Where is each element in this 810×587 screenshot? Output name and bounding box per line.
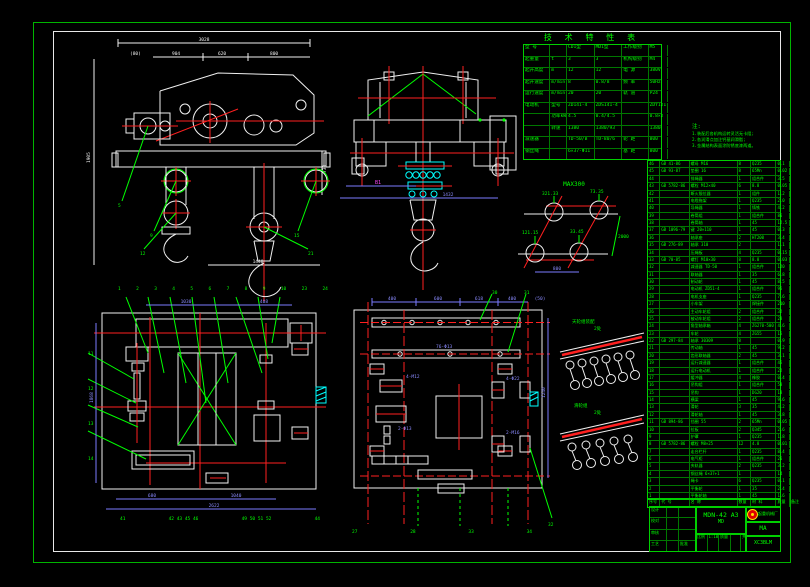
table-row: 33GB 70-85螺钉 M10×3088.80.03	[648, 257, 780, 264]
table-cell: 45	[751, 279, 776, 285]
table-cell	[790, 183, 800, 189]
table-row: 37GB 1096-79键 20×1101450.3	[648, 227, 780, 234]
table-cell: 1	[738, 286, 752, 292]
leader-label: 28	[410, 530, 415, 535]
dimension-lines: 400 600 618 400 (50) 1240 4-M12 4-Φ22 2-…	[372, 296, 548, 478]
table-cell: 1	[738, 486, 752, 492]
leader-label: 7	[227, 287, 230, 292]
leader-label: 4	[172, 287, 175, 292]
table-cell: 9.2	[776, 345, 790, 351]
table-cell: 电动机	[524, 103, 550, 114]
table-cell: 挡圈 55	[690, 419, 738, 425]
table-cell: 12	[595, 68, 623, 79]
table-cell: 37	[648, 227, 660, 233]
table-cell	[790, 478, 800, 484]
table-cell	[790, 463, 800, 469]
company-stamp-icon	[747, 509, 758, 520]
table-cell	[790, 198, 800, 204]
leader-label: 10	[281, 287, 286, 292]
table-cell: 1	[738, 279, 752, 285]
table-row: 10拉板2Q3452.6	[648, 427, 780, 434]
table-row: 41电缆拖架1Q2352.0	[648, 198, 780, 205]
table-cell	[660, 294, 689, 300]
table-row: 18运行电动机1组合件22	[648, 368, 780, 375]
table-cell: 4.2	[776, 404, 790, 410]
table-cell	[790, 264, 800, 270]
table-row: 42断火限位器1组件1.2	[648, 191, 780, 198]
table-row: 审核	[650, 530, 696, 541]
table-cell: 组合件	[751, 176, 776, 182]
table-cell: 电 源	[622, 68, 648, 79]
table-cell: 9.6	[776, 397, 790, 403]
leader-label: 49 50 51 52	[242, 517, 272, 522]
table-cell: 22	[648, 338, 660, 344]
table-cell	[790, 434, 800, 440]
table-row: 25被动车轮组2组合件28	[648, 316, 780, 323]
table-cell: 8	[648, 441, 660, 447]
table-cell: 0.15	[776, 250, 790, 256]
table-cell	[668, 126, 681, 137]
leader-label: 3	[154, 287, 157, 292]
table-cell: 轴承 30309	[690, 338, 738, 344]
table-cell	[668, 103, 681, 114]
table-cell	[668, 45, 681, 56]
table-cell: Q235	[751, 434, 776, 440]
table-row: 27小车架1焊接件210	[648, 301, 780, 308]
table-cell: 6×37-Φ11	[567, 149, 595, 160]
table-cell: 螺母 M16	[690, 161, 738, 167]
table-cell: 组合件	[751, 316, 776, 322]
drive-shaft	[254, 343, 308, 441]
hole-callout: 2-Φ13	[398, 426, 412, 432]
table-cell: 功率kW	[550, 114, 567, 125]
travel-gearbox	[132, 451, 228, 483]
table-cell: 4	[738, 250, 752, 256]
table-cell: 15	[648, 390, 660, 396]
table-cell: 1.1	[776, 242, 790, 248]
wheel-load-label: 73.35	[590, 189, 604, 195]
table-cell: 护罩	[690, 434, 738, 440]
table-cell: 4.2	[776, 205, 790, 211]
table-row: 钢丝绳6×37-Φ11基 距800	[524, 149, 661, 160]
table-cell	[790, 220, 800, 226]
table-cell: 2	[738, 316, 752, 322]
table-row: 6电气柜1组合件26	[648, 456, 780, 463]
table-cell	[668, 91, 681, 102]
upper-frame	[358, 66, 496, 290]
table-cell: 缓冲器	[690, 375, 738, 381]
table-cell: 型 号	[524, 45, 550, 56]
table-cell: 8.4	[776, 449, 790, 455]
table-cell	[660, 404, 689, 410]
trolley-frame	[112, 151, 330, 167]
table-cell	[660, 427, 689, 433]
leader-label: 6	[208, 287, 211, 292]
table-cell	[524, 114, 550, 125]
table-cell: GB 276-89	[660, 242, 689, 248]
leader-label: 15	[294, 233, 300, 239]
hole-callout: 2-M16	[506, 430, 520, 436]
leader-label: 44	[315, 517, 320, 522]
table-cell: 800	[649, 149, 668, 160]
table-cell: 43	[648, 183, 660, 189]
table-cell: 0.02	[776, 168, 790, 174]
signature-grid: 设计校对审核工艺批准	[649, 506, 697, 552]
table-cell: t	[550, 57, 567, 68]
table-cell: 组合件	[751, 368, 776, 374]
table-cell: 40	[648, 205, 660, 211]
leader-label: 5	[190, 287, 193, 292]
table-cell	[790, 449, 800, 455]
table-cell	[660, 375, 689, 381]
table-cell	[660, 412, 689, 418]
detail-label: 天轮组装配	[572, 318, 595, 325]
table-cell: 13	[648, 404, 660, 410]
leader-label: 33	[468, 530, 473, 535]
table-row: 4钢丝绳 6×37+1114	[648, 471, 780, 478]
table-cell	[731, 534, 742, 551]
table-cell	[790, 309, 800, 315]
table-cell: 组合件	[751, 213, 776, 219]
table-row: 起升高度m1212电 源380V	[524, 68, 661, 80]
leader-label: 23	[302, 287, 307, 292]
table-cell	[660, 397, 689, 403]
table-cell: 3.4	[776, 235, 790, 241]
table-row: 设计	[650, 507, 696, 518]
wheel-load-label: 321.33	[542, 191, 559, 197]
table-cell: 16	[648, 382, 660, 388]
table-cell	[790, 191, 800, 197]
detail-label: 滑轮组	[574, 402, 588, 409]
table-cell: 减速器 TD-50	[690, 264, 738, 270]
table-cell: 备注	[790, 499, 800, 507]
leader-label: 42 43 45 46	[169, 517, 199, 522]
dim-label: 1905	[86, 152, 92, 163]
drawing-number-sub: MD	[696, 519, 746, 525]
table-row: 转速13801380/931380	[524, 126, 661, 138]
table-cell	[524, 126, 550, 137]
table-cell	[790, 242, 800, 248]
rope-drum	[178, 353, 236, 445]
leader-label: 8	[245, 287, 248, 292]
table-cell	[790, 441, 800, 447]
table-cell	[667, 541, 679, 551]
table-cell: 压绳板	[690, 250, 738, 256]
table-cell: 组件	[751, 191, 776, 197]
dim-label: 904	[172, 51, 180, 57]
side-elevation-view: 3028 (80) 904 620 800 1905 730 1440	[58, 33, 330, 271]
item-number-strip: 4142 43 45 4649 50 51 5244	[120, 517, 320, 522]
dim-label: (50)	[535, 296, 546, 302]
table-cell: 14	[776, 471, 790, 477]
table-cell: 24	[648, 323, 660, 329]
table-cell: 卷筒组	[690, 213, 738, 219]
table-cell	[751, 338, 776, 344]
hook-block-assembly	[398, 142, 452, 271]
leader-label: 27	[352, 530, 357, 535]
table-row: 19运行减速器1组合件45	[648, 360, 780, 367]
table-cell: 800	[649, 137, 668, 148]
leader-label: 9	[150, 233, 153, 239]
table-cell	[790, 486, 800, 492]
table-cell: 45	[751, 412, 776, 418]
table-cell: 42	[648, 191, 660, 197]
table-cell: 20	[595, 91, 623, 102]
table-cell: 1	[738, 220, 752, 226]
table-cell: 1	[738, 227, 752, 233]
table-cell: 12.5	[776, 220, 790, 226]
table-row: 功率kW4.50.4/4.50.8×2	[524, 114, 661, 126]
hatch-patch	[316, 387, 326, 403]
table-cell: 组合件	[751, 382, 776, 388]
table-cell	[660, 486, 689, 492]
table-cell	[660, 309, 689, 315]
table-cell: 排绳器	[690, 176, 738, 182]
table-cell: 联轴器	[690, 272, 738, 278]
spec-table-title: 技 术 特 性 表	[523, 32, 660, 43]
table-cell	[790, 257, 800, 263]
table-cell: 32	[776, 309, 790, 315]
table-cell: 基 距	[622, 149, 648, 160]
table-cell: 4.6	[776, 323, 790, 329]
table-cell: m	[550, 68, 567, 79]
table-cell: 12	[648, 412, 660, 418]
table-cell: 1.8	[776, 434, 790, 440]
table-cell: 1:10	[708, 534, 720, 551]
table-cell	[790, 272, 800, 278]
table-row: 23车轮4ZG5515	[648, 331, 780, 338]
table-cell: 橡胶	[751, 375, 776, 381]
table-cell: 机构级别	[622, 57, 648, 68]
table-cell: 齿形联轴器	[690, 353, 738, 359]
table-cell: 主动车轮组	[690, 309, 738, 315]
table-cell: 4	[738, 323, 752, 329]
table-cell: 380V	[649, 68, 668, 79]
leader-label: 11	[88, 352, 98, 357]
table-cell	[660, 390, 689, 396]
dim-label: 408	[260, 299, 268, 305]
table-cell: 28	[648, 294, 660, 300]
bottom-fittings	[418, 470, 472, 493]
table-cell: 27	[648, 301, 660, 307]
table-cell: 58	[776, 382, 790, 388]
table-cell: 0.4	[776, 375, 790, 381]
table-cell	[622, 126, 648, 137]
table-row: 22GB 297-84轴承 3030980.9	[648, 338, 780, 345]
table-row: 28电机支座1Q2357.6	[648, 294, 780, 301]
table-cell: DG20	[751, 390, 776, 396]
table-cell: 1	[738, 368, 752, 374]
table-cell	[790, 471, 800, 477]
table-cell: 45	[751, 397, 776, 403]
table-cell: 0.3	[776, 227, 790, 233]
hole-callout: 4-Φ22	[506, 376, 520, 382]
table-cell	[668, 68, 681, 79]
table-cell	[790, 168, 800, 174]
table-row: 12滑轮轴1453.8	[648, 412, 780, 419]
table-cell: 18	[776, 390, 790, 396]
item-number-strip: 11121314	[88, 352, 98, 462]
hole-callout: 4-M12	[406, 374, 420, 380]
table-row: 11GB 894-86挡圈 55265Mn0.05	[648, 419, 780, 426]
table-cell: 28	[776, 316, 790, 322]
table-cell: GB 70-85	[660, 257, 689, 263]
gearbox	[156, 73, 324, 145]
table-cell: 45	[751, 220, 776, 226]
table-row: 40导绳器1铸铁4.2	[648, 205, 780, 212]
table-cell: 拉板	[690, 427, 738, 433]
table-row: 16吊钩组1组合件58	[648, 382, 780, 389]
table-cell	[790, 353, 800, 359]
table-cell: Q235	[751, 294, 776, 300]
table-cell: Q235	[751, 478, 776, 484]
table-cell	[790, 397, 800, 403]
table-cell	[790, 323, 800, 329]
table-cell: 车轮	[690, 331, 738, 337]
table-cell: ZG270-500	[751, 323, 776, 329]
table-cell: 210	[776, 301, 790, 307]
note-line: 3.金属结构表面涂防锈底漆两道。	[692, 143, 778, 149]
table-cell	[790, 338, 800, 344]
wheel-load-label: 33.45	[570, 229, 584, 235]
table-cell	[790, 176, 800, 182]
table-cell	[790, 375, 800, 381]
table-cell: 2	[738, 242, 752, 248]
table-cell: Q235	[751, 250, 776, 256]
table-cell: 3	[648, 478, 660, 484]
table-cell: 小车架	[690, 301, 738, 307]
table-cell: 1	[738, 272, 752, 278]
table-cell: 17	[648, 375, 660, 381]
leader-label: 13	[88, 422, 98, 427]
table-cell: 22	[776, 368, 790, 374]
company-name: 起重机械厂	[758, 511, 780, 517]
table-cell: 20	[567, 91, 595, 102]
table-cell	[668, 80, 681, 91]
table-cell	[660, 198, 689, 204]
table-cell: 螺栓 M8×25	[690, 441, 738, 447]
table-cell: 6	[738, 183, 752, 189]
table-cell: 设计	[650, 507, 667, 517]
marker-dot	[502, 118, 505, 121]
table-cell	[679, 507, 696, 517]
table-cell: 14	[648, 397, 660, 403]
table-cell: MD1型	[595, 45, 623, 56]
table-cell: 36	[648, 235, 660, 241]
table-cell: GB 93-87	[660, 168, 689, 174]
table-cell: 38	[648, 220, 660, 226]
table-cell	[660, 301, 689, 307]
table-cell: 0.05	[776, 183, 790, 189]
table-cell: 45	[751, 353, 776, 359]
leader-label: 9	[263, 287, 266, 292]
table-cell	[660, 279, 689, 285]
table-row: 30制动轮1458.5	[648, 279, 780, 286]
table-cell: 23	[648, 331, 660, 337]
table-cell	[751, 471, 776, 477]
table-cell: 4.5	[567, 114, 595, 125]
table-cell: 15	[776, 331, 790, 337]
dim-label: 618	[475, 296, 483, 302]
table-cell: 31	[648, 272, 660, 278]
table-row: 20齿形联轴器2453.1	[648, 353, 780, 360]
table-cell: 铸铁	[751, 205, 776, 211]
table-cell: 1	[738, 294, 752, 300]
table-cell	[790, 205, 800, 211]
table-cell: 1	[738, 264, 752, 270]
dim-label: 1030	[181, 299, 192, 305]
table-cell	[660, 250, 689, 256]
table-row: 32减速器 TD-501组合件120	[648, 264, 780, 271]
table-row: 45GB 93-87垫圈 16865Mn0.02	[648, 168, 780, 175]
right-fittings	[492, 382, 538, 452]
table-cell: GB 41-86	[660, 161, 689, 167]
table-cell: 10	[648, 427, 660, 433]
notes-block: 注: 1.装配后各机构运转灵活无卡阻; 2.各润滑点加注钙基润滑脂; 3.金属结…	[692, 124, 778, 148]
leader-label: 24	[322, 287, 327, 292]
table-cell: 25	[648, 316, 660, 322]
table-cell	[790, 286, 800, 292]
table-cell	[660, 382, 689, 388]
table-cell: 2	[648, 486, 660, 492]
table-row: 型 号CD1型MD1型工作级别M5	[524, 45, 661, 57]
table-cell: 钢丝绳	[524, 149, 550, 160]
detail-qty: 2处	[594, 325, 602, 332]
parts-list-table: 46GB 41-86螺母 M168Q2350.145GB 93-87垫圈 168…	[647, 160, 781, 500]
table-row: 比例1:10质量共1张第1张	[696, 534, 746, 551]
table-cell: 3.8	[776, 412, 790, 418]
table-cell	[790, 368, 800, 374]
end-elevation-view: B1 1432	[328, 58, 526, 298]
dim-label: 2000	[618, 234, 629, 240]
table-cell: ZD141-4	[567, 103, 595, 114]
table-cell: GB 5782-86	[660, 441, 689, 447]
table-cell: m/min	[550, 91, 567, 102]
table-cell	[790, 427, 800, 433]
table-cell: CD1型	[567, 45, 595, 56]
table-cell: 断火限位器	[690, 191, 738, 197]
table-cell	[660, 331, 689, 337]
table-cell: 50Hz	[649, 80, 668, 91]
table-cell: 2	[738, 427, 752, 433]
leader-label: 2	[136, 287, 139, 292]
table-cell: 1	[738, 397, 752, 403]
table-cell: 3.2	[776, 463, 790, 469]
table-cell	[660, 471, 689, 477]
table-cell	[622, 103, 648, 114]
table-cell: 12	[738, 441, 752, 447]
detail-views: 天轮组装配 2处 滑轮组 2处	[558, 315, 646, 473]
table-cell: 吊钩组	[690, 382, 738, 388]
dim-label: (80)	[130, 51, 141, 57]
table-cell: 8.8	[751, 183, 776, 189]
table-cell: 6	[738, 478, 752, 484]
table-cell: Q235	[751, 449, 776, 455]
table-cell: 120	[776, 264, 790, 270]
cad-drawing-sheet: 3028 (80) 904 620 800 1905 730 1440	[0, 0, 810, 587]
table-cell	[595, 149, 623, 160]
table-cell	[660, 368, 689, 374]
table-cell: 5	[648, 463, 660, 469]
table-cell: 3.5	[776, 176, 790, 182]
table-cell: 横梁	[690, 397, 738, 403]
table-cell: 2	[738, 353, 752, 359]
table-cell: 1	[738, 176, 752, 182]
table-cell: 1380	[649, 126, 668, 137]
table-cell: 1	[738, 449, 752, 455]
table-cell: 2	[738, 235, 752, 241]
table-cell: 11	[648, 419, 660, 425]
